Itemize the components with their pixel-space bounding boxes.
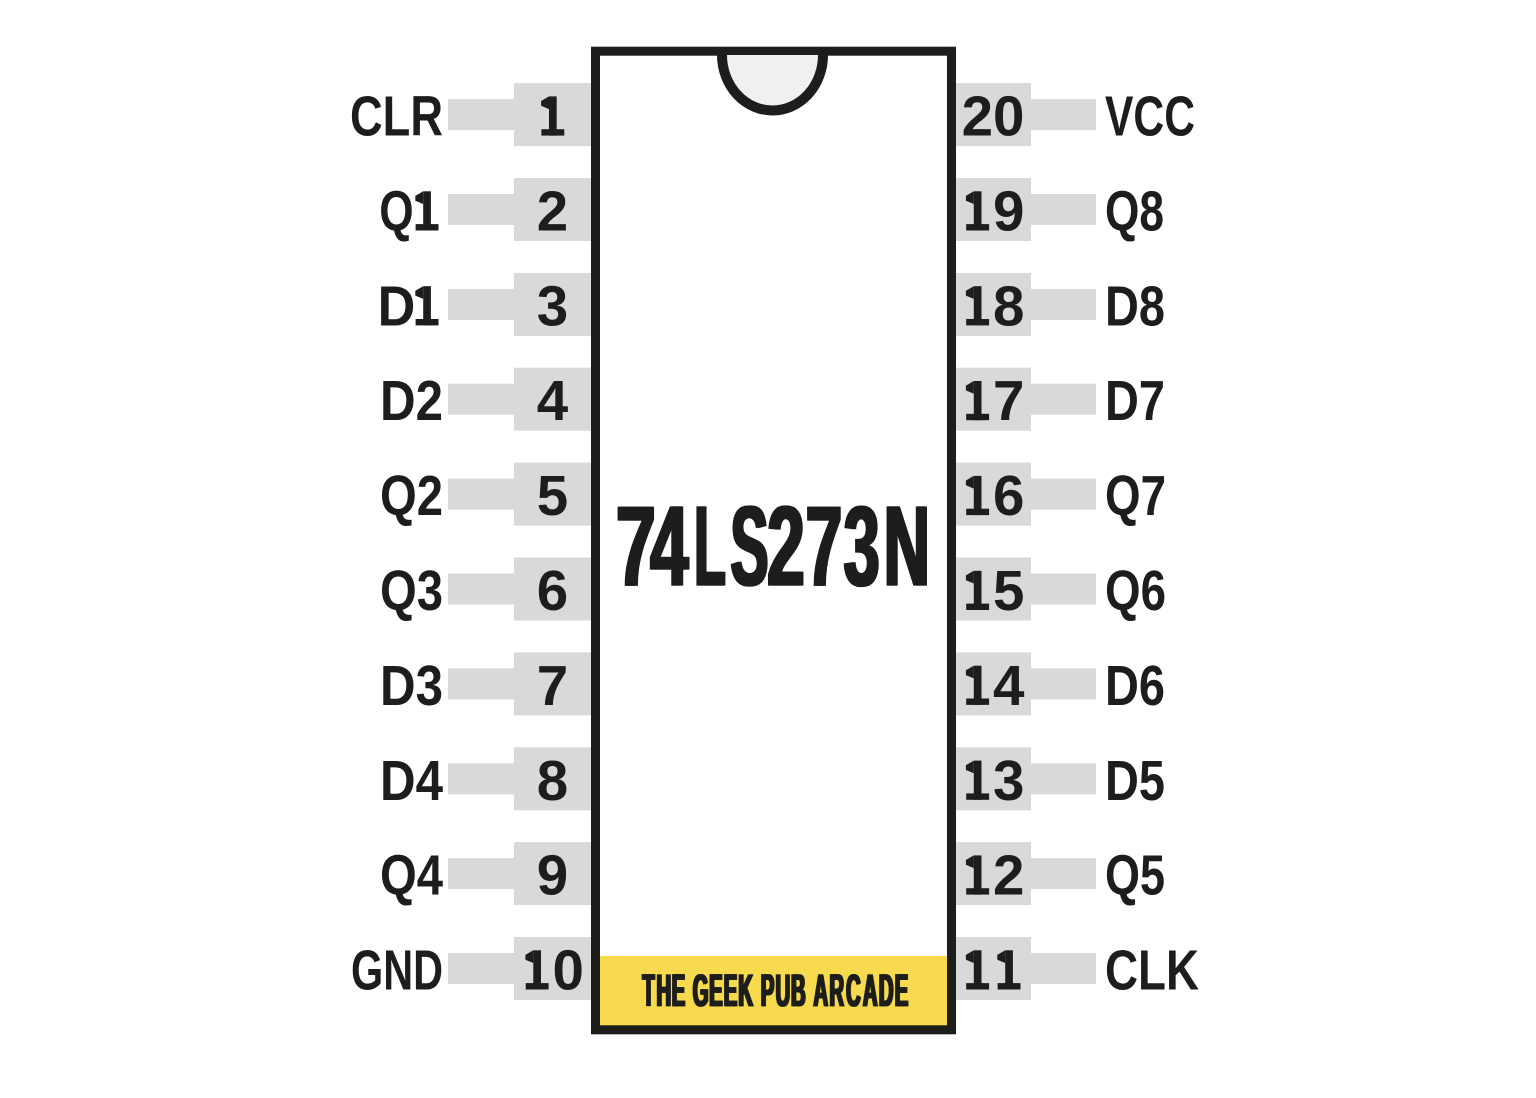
svg-text:Q6: Q6 (1105, 559, 1166, 622)
svg-text:T: T (643, 966, 655, 1016)
svg-text:6: 6 (993, 464, 1024, 527)
svg-text:D: D (880, 966, 895, 1016)
svg-text:E: E (673, 966, 687, 1016)
svg-text:2: 2 (962, 85, 993, 148)
svg-text:3: 3 (537, 274, 568, 337)
svg-text:Q4: Q4 (380, 844, 443, 907)
svg-text:U: U (776, 966, 791, 1016)
svg-text:D: D (378, 274, 416, 337)
svg-text:4: 4 (537, 369, 569, 432)
svg-text:4: 4 (993, 654, 1025, 717)
svg-text:D7: D7 (1105, 369, 1165, 432)
svg-text:P: P (762, 966, 776, 1016)
svg-text:D8: D8 (1105, 274, 1165, 337)
svg-text:2: 2 (768, 483, 806, 609)
svg-text:D2: D2 (380, 369, 443, 432)
svg-text:9: 9 (993, 180, 1024, 243)
svg-text:9: 9 (537, 844, 568, 907)
svg-text:Q2: Q2 (380, 464, 443, 527)
svg-text:8: 8 (993, 274, 1024, 337)
svg-text:7: 7 (537, 654, 568, 717)
svg-text:Q: Q (379, 179, 413, 243)
svg-text:0: 0 (993, 85, 1024, 148)
svg-text:D5: D5 (1105, 749, 1165, 812)
svg-text:5: 5 (537, 464, 568, 527)
svg-text:CLK: CLK (1105, 939, 1199, 1002)
svg-text:3: 3 (993, 749, 1024, 812)
svg-text:CLR: CLR (350, 85, 443, 148)
svg-text:Q8: Q8 (1105, 180, 1164, 243)
svg-text:D4: D4 (380, 749, 443, 812)
svg-text:S: S (732, 483, 770, 609)
svg-text:H: H (657, 966, 672, 1016)
svg-text:L: L (696, 483, 727, 609)
svg-text:K: K (739, 966, 754, 1016)
svg-text:6: 6 (537, 559, 568, 622)
svg-text:D3: D3 (380, 654, 443, 717)
svg-text:3: 3 (845, 483, 881, 609)
svg-text:C: C (847, 966, 862, 1016)
svg-text:N: N (885, 484, 931, 610)
svg-text:B: B (792, 966, 807, 1016)
svg-text:VCC: VCC (1105, 85, 1195, 148)
svg-text:G: G (694, 966, 710, 1016)
svg-text:Q3: Q3 (380, 559, 443, 622)
svg-text:E: E (896, 966, 910, 1016)
svg-text:2: 2 (537, 180, 568, 243)
svg-text:0: 0 (552, 939, 583, 1002)
svg-text:Q7: Q7 (1105, 464, 1166, 527)
svg-text:4: 4 (651, 482, 689, 609)
svg-text:E: E (725, 966, 739, 1016)
svg-text:5: 5 (993, 559, 1024, 622)
svg-text:7: 7 (807, 482, 843, 609)
svg-text:E: E (710, 966, 724, 1016)
svg-text:7: 7 (993, 369, 1024, 432)
svg-text:A: A (864, 966, 879, 1016)
svg-text:8: 8 (537, 749, 568, 812)
svg-text:A: A (814, 966, 829, 1016)
svg-text:GND: GND (351, 939, 443, 1002)
svg-text:Q5: Q5 (1105, 844, 1165, 907)
svg-text:2: 2 (993, 844, 1024, 907)
svg-text:D6: D6 (1105, 654, 1165, 717)
svg-text:R: R (830, 966, 845, 1016)
